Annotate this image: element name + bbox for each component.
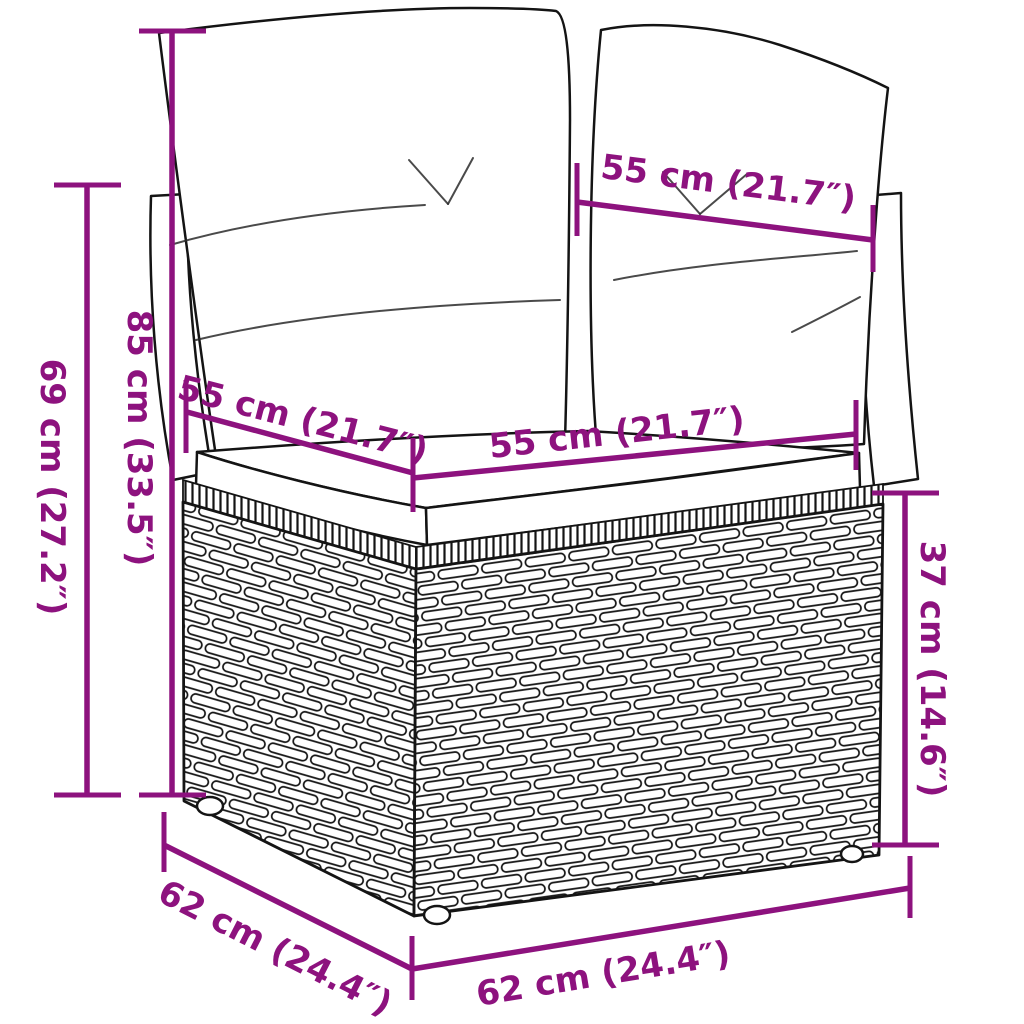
- dim-label-85cm: 85 cm (33.5″): [119, 310, 159, 567]
- dim-label-37cm: 37 cm (14.6″): [912, 541, 952, 798]
- foot: [841, 846, 863, 862]
- foot: [197, 797, 223, 815]
- product-dimension-diagram: 85 cm (33.5″) 69 cm (27.2″) 55 cm (21.7″…: [0, 0, 1024, 1024]
- dim-label-diag-62cm: 62 cm (24.4″): [152, 872, 399, 1024]
- dimension-base-height: 37 cm (14.6″): [872, 493, 952, 845]
- foot: [424, 906, 450, 924]
- dimension-backrest-height: 69 cm (27.2″): [32, 185, 121, 795]
- dim-label-69cm: 69 cm (27.2″): [32, 359, 72, 616]
- dim-label-bottom-62cm: 62 cm (24.4″): [473, 933, 733, 1014]
- base-face-front: [414, 504, 883, 916]
- diagram-canvas: 85 cm (33.5″) 69 cm (27.2″) 55 cm (21.7″…: [0, 0, 1024, 1024]
- base-face-left: [183, 502, 416, 916]
- wicker-base: [183, 480, 883, 924]
